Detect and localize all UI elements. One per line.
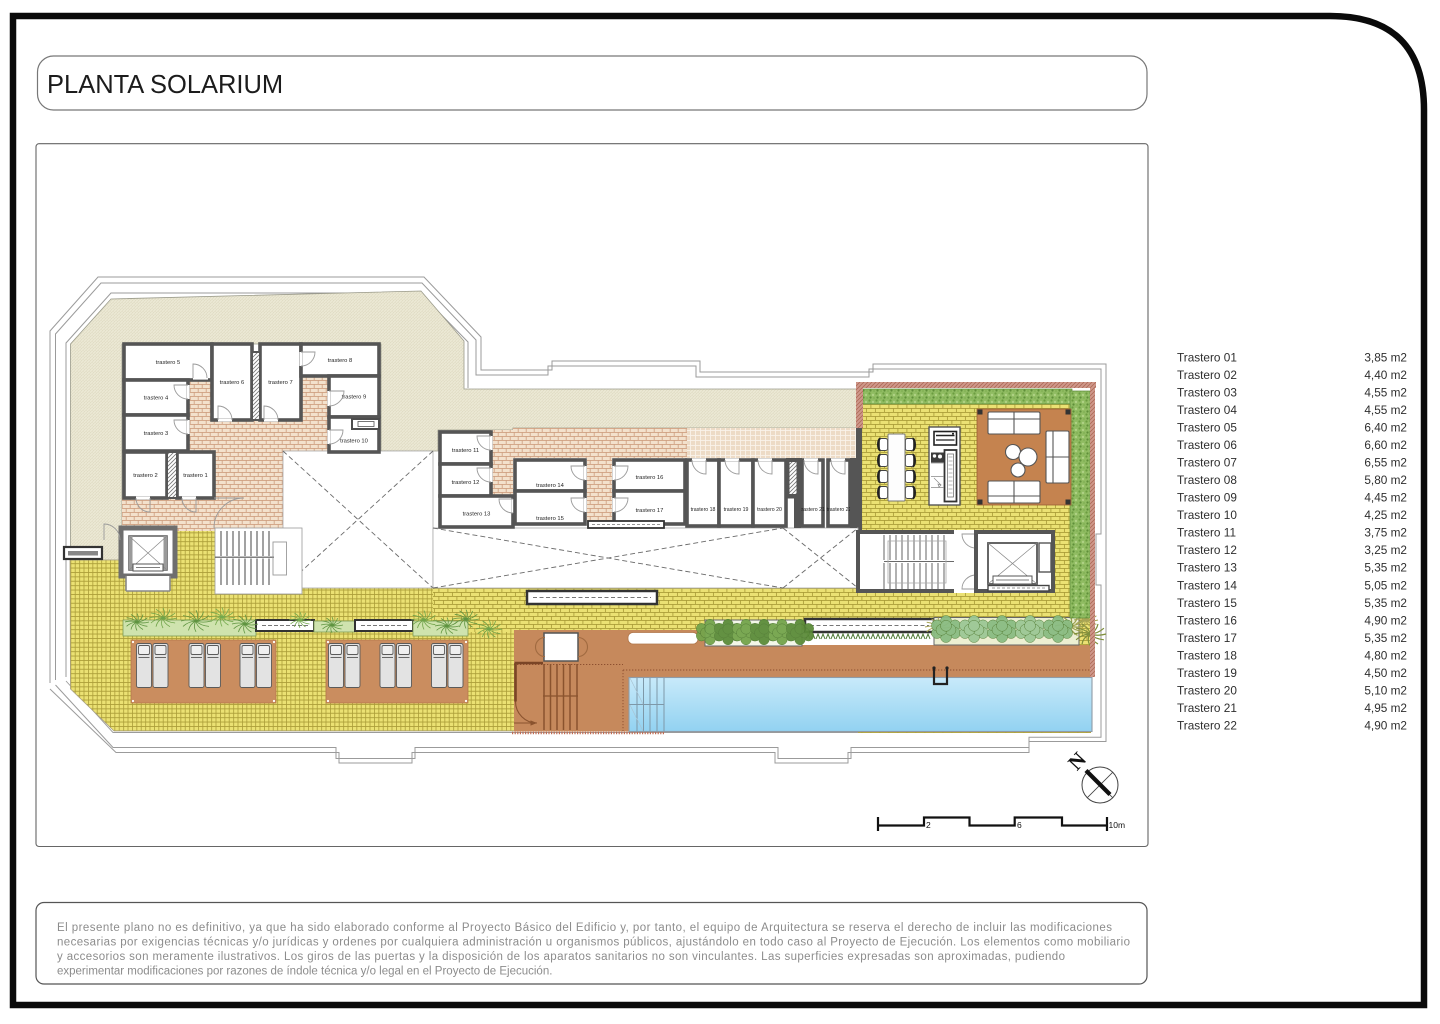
svg-text:5,35 m2: 5,35 m2 bbox=[1364, 561, 1407, 575]
svg-text:experimentar modificaciones po: experimentar modificaciones por razones … bbox=[57, 966, 552, 978]
svg-text:trastero 2: trastero 2 bbox=[133, 473, 158, 479]
svg-text:Trastero 17: Trastero 17 bbox=[1177, 631, 1237, 645]
svg-text:Trastero 18: Trastero 18 bbox=[1177, 648, 1237, 662]
svg-text:4,40 m2: 4,40 m2 bbox=[1364, 368, 1407, 382]
svg-text:Trastero 06: Trastero 06 bbox=[1177, 438, 1237, 452]
svg-text:Trastero 16: Trastero 16 bbox=[1177, 613, 1237, 627]
svg-text:4,80 m2: 4,80 m2 bbox=[1364, 648, 1407, 662]
svg-text:trastero 11: trastero 11 bbox=[452, 448, 479, 454]
svg-text:5,35 m2: 5,35 m2 bbox=[1364, 631, 1407, 645]
svg-text:Trastero 02: Trastero 02 bbox=[1177, 368, 1237, 382]
svg-text:3,75 m2: 3,75 m2 bbox=[1364, 526, 1407, 540]
svg-text:4,90 m2: 4,90 m2 bbox=[1364, 718, 1407, 732]
svg-text:trastero 17: trastero 17 bbox=[636, 508, 664, 514]
svg-text:trastero 8: trastero 8 bbox=[328, 358, 353, 364]
svg-text:trastero 6: trastero 6 bbox=[220, 380, 245, 386]
svg-text:4,90 m2: 4,90 m2 bbox=[1364, 613, 1407, 627]
svg-text:trastero 18: trastero 18 bbox=[691, 507, 716, 513]
svg-text:trastero 10: trastero 10 bbox=[340, 439, 368, 445]
svg-text:trastero 4: trastero 4 bbox=[144, 396, 169, 402]
svg-text:trastero 15: trastero 15 bbox=[536, 516, 564, 522]
svg-text:Trastero 07: Trastero 07 bbox=[1177, 456, 1237, 470]
svg-text:Trastero 20: Trastero 20 bbox=[1177, 683, 1237, 697]
svg-text:6,40 m2: 6,40 m2 bbox=[1364, 421, 1407, 435]
svg-text:El presente plano no es defini: El presente plano no es definitivo, ya q… bbox=[57, 922, 1112, 934]
svg-text:6,55 m2: 6,55 m2 bbox=[1364, 456, 1407, 470]
svg-text:trastero 19: trastero 19 bbox=[724, 507, 749, 513]
svg-text:y accesorios son meramente ilu: y accesorios son meramente ilustrativos.… bbox=[57, 951, 1065, 963]
svg-text:Trastero 22: Trastero 22 bbox=[1177, 718, 1237, 732]
svg-text:trastero 16: trastero 16 bbox=[636, 475, 664, 481]
svg-text:2: 2 bbox=[926, 820, 931, 830]
svg-text:4,45 m2: 4,45 m2 bbox=[1364, 491, 1407, 505]
svg-text:4,50 m2: 4,50 m2 bbox=[1364, 666, 1407, 680]
svg-text:trastero 9: trastero 9 bbox=[342, 395, 367, 401]
svg-text:Trastero 15: Trastero 15 bbox=[1177, 596, 1237, 610]
svg-text:6,60 m2: 6,60 m2 bbox=[1364, 438, 1407, 452]
svg-text:trastero 14: trastero 14 bbox=[536, 483, 564, 489]
svg-text:Trastero 04: Trastero 04 bbox=[1177, 403, 1237, 417]
svg-text:Trastero 13: Trastero 13 bbox=[1177, 561, 1237, 575]
svg-text:trastero 5: trastero 5 bbox=[156, 360, 181, 366]
svg-text:5,10 m2: 5,10 m2 bbox=[1364, 683, 1407, 697]
svg-text:trastero 3: trastero 3 bbox=[144, 431, 169, 437]
svg-text:4,95 m2: 4,95 m2 bbox=[1364, 701, 1407, 715]
svg-text:Trastero 19: Trastero 19 bbox=[1177, 666, 1237, 680]
svg-text:necesarias por exigencias técn: necesarias por exigencias técnicas y/o j… bbox=[57, 937, 1130, 949]
svg-text:Trastero 09: Trastero 09 bbox=[1177, 491, 1237, 505]
svg-text:trastero 1: trastero 1 bbox=[183, 473, 208, 479]
svg-text:trastero 7: trastero 7 bbox=[268, 380, 293, 386]
svg-text:5,35 m2: 5,35 m2 bbox=[1364, 596, 1407, 610]
svg-text:10m: 10m bbox=[1109, 820, 1126, 830]
svg-text:trastero 22: trastero 22 bbox=[827, 507, 852, 513]
svg-text:4,55 m2: 4,55 m2 bbox=[1364, 386, 1407, 400]
svg-text:Trastero 05: Trastero 05 bbox=[1177, 421, 1237, 435]
svg-text:4,25 m2: 4,25 m2 bbox=[1364, 508, 1407, 522]
svg-text:6: 6 bbox=[1017, 820, 1022, 830]
svg-text:Trastero 08: Trastero 08 bbox=[1177, 473, 1237, 487]
svg-text:Trastero 11: Trastero 11 bbox=[1177, 526, 1236, 540]
svg-text:Trastero 14: Trastero 14 bbox=[1177, 578, 1237, 592]
svg-text:Trastero 12: Trastero 12 bbox=[1177, 543, 1237, 557]
svg-text:trastero 21: trastero 21 bbox=[800, 507, 825, 513]
svg-text:3,85 m2: 3,85 m2 bbox=[1364, 351, 1407, 365]
svg-text:trastero 20: trastero 20 bbox=[757, 507, 782, 513]
svg-text:5,80 m2: 5,80 m2 bbox=[1364, 473, 1407, 487]
svg-text:Trastero 01: Trastero 01 bbox=[1177, 351, 1237, 365]
svg-text:Trastero 10: Trastero 10 bbox=[1177, 508, 1237, 522]
svg-text:PLANTA SOLARIUM: PLANTA SOLARIUM bbox=[47, 71, 283, 99]
svg-text:5,05 m2: 5,05 m2 bbox=[1364, 578, 1407, 592]
svg-text:trastero 12: trastero 12 bbox=[452, 480, 480, 486]
svg-text:trastero 13: trastero 13 bbox=[463, 512, 491, 518]
svg-text:Trastero 21: Trastero 21 bbox=[1177, 701, 1237, 715]
svg-text:3,25 m2: 3,25 m2 bbox=[1364, 543, 1407, 557]
svg-text:4,55 m2: 4,55 m2 bbox=[1364, 403, 1407, 417]
svg-text:Trastero 03: Trastero 03 bbox=[1177, 386, 1237, 400]
